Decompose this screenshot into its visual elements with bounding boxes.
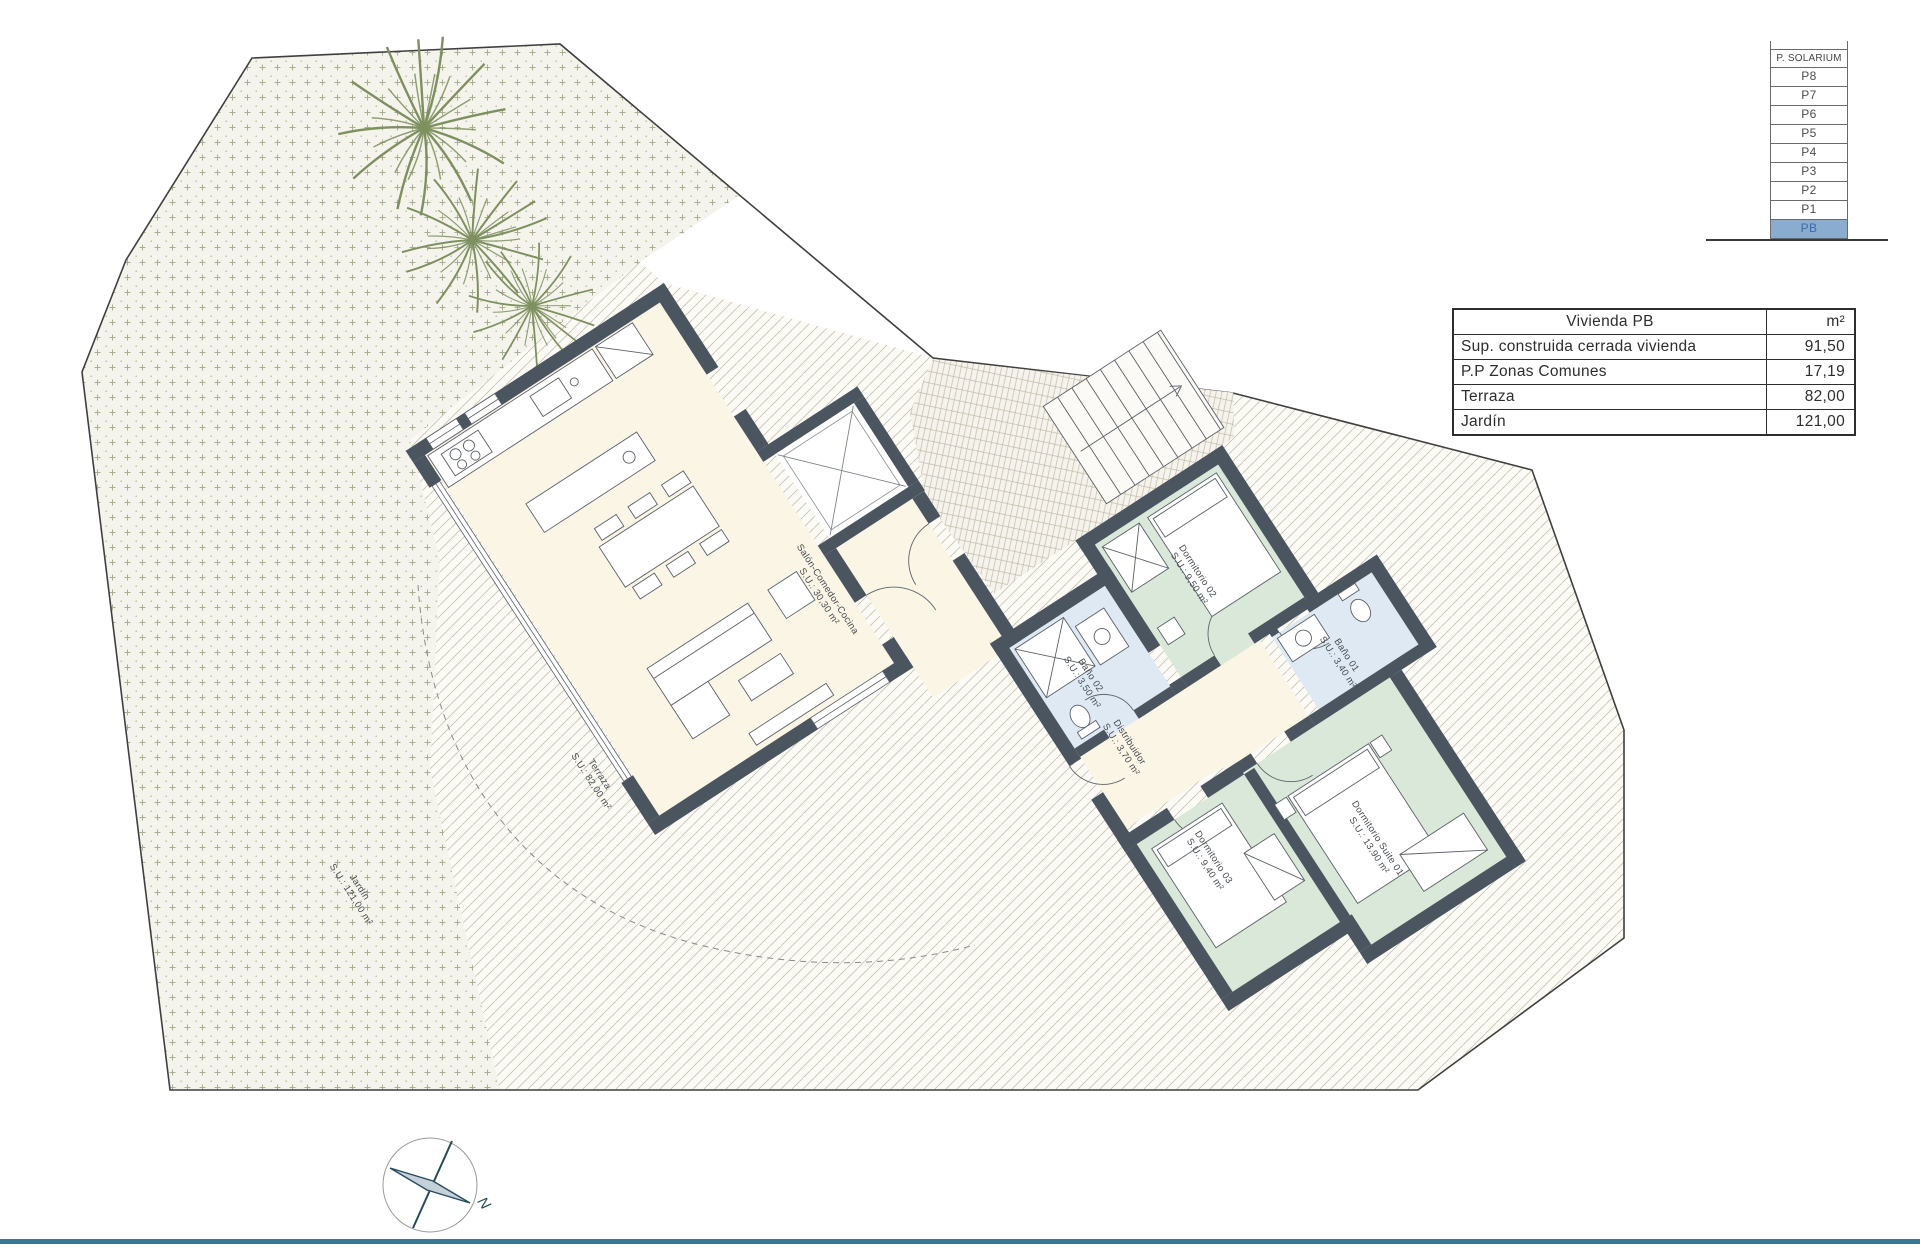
floor-plan-canvas: Salón-Comedor-Cocina S.U.: 30,30 m² Dorm…: [0, 0, 1920, 1247]
area-table-row: Jardín 121,00: [1454, 409, 1854, 434]
north-label: N: [474, 1194, 494, 1213]
plan-viewer-page: Salón-Comedor-Cocina S.U.: 30,30 m² Dorm…: [0, 0, 1920, 1247]
north-needle: [390, 1168, 470, 1203]
floor-row-p2[interactable]: P2: [1770, 182, 1848, 201]
floor-row-p4[interactable]: P4: [1770, 144, 1848, 163]
floor-row-p1[interactable]: P1: [1770, 201, 1848, 220]
floor-row-p5[interactable]: P5: [1770, 125, 1848, 144]
area-table-row: P.P Zonas Comunes 17,19: [1454, 359, 1854, 384]
floor-row-pb-active[interactable]: PB: [1770, 220, 1848, 239]
floor-selector: P. SOLARIUM P8 P7 P6 P5 P4 P3 P2 P1 PB: [1770, 49, 1848, 239]
floor-row-solarium[interactable]: P. SOLARIUM: [1770, 49, 1848, 68]
bottom-accent-bar: [0, 1239, 1920, 1244]
area-table-header: Vivienda PB m²: [1454, 310, 1854, 334]
area-table-row: Terraza 82,00: [1454, 384, 1854, 409]
area-table-row: Sup. construida cerrada vivienda 91,50: [1454, 334, 1854, 359]
compass-rose: N: [383, 1138, 494, 1232]
floor-selector-tick: [1847, 41, 1848, 49]
floor-row-p3[interactable]: P3: [1770, 163, 1848, 182]
area-table: Vivienda PB m² Sup. construida cerrada v…: [1452, 308, 1856, 436]
floor-row-p7[interactable]: P7: [1770, 87, 1848, 106]
area-table-unit: m²: [1766, 310, 1854, 334]
ground-line: [1706, 239, 1888, 241]
floor-row-p6[interactable]: P6: [1770, 106, 1848, 125]
area-table-title: Vivienda PB: [1454, 310, 1766, 334]
floor-row-p8[interactable]: P8: [1770, 68, 1848, 87]
floor-selector-tick: [1770, 41, 1771, 49]
